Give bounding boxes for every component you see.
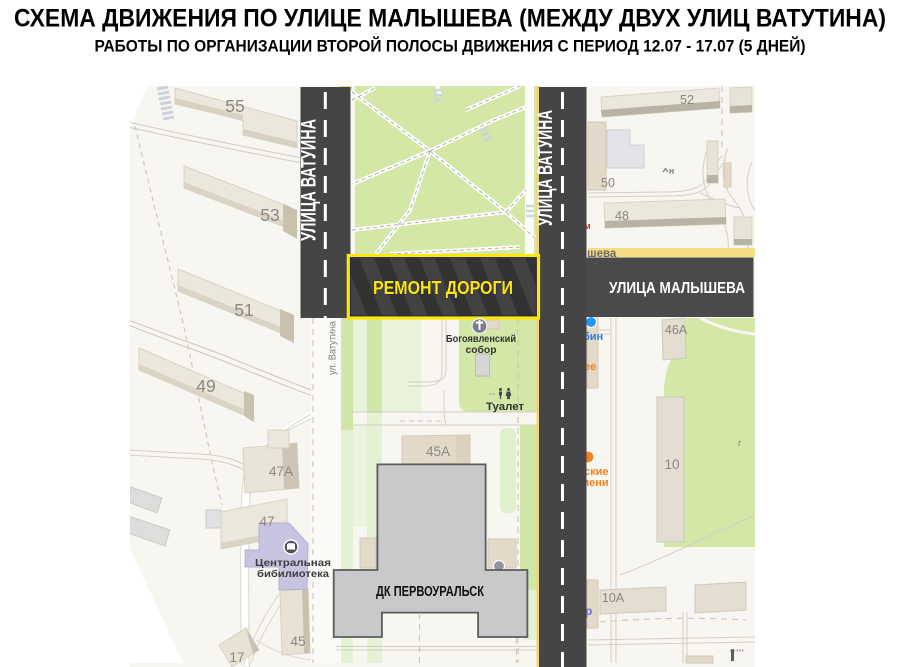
svg-text:РАБОТЫ ПО ОРГАНИЗАЦИИ ВТОРОЙ П: РАБОТЫ ПО ОРГАНИЗАЦИИ ВТОРОЙ ПОЛОСЫ ДВИЖ… — [95, 37, 806, 56]
svg-text:Туалет: Туалет — [486, 401, 525, 413]
svg-text:47А: 47А — [269, 464, 293, 479]
svg-text:51: 51 — [234, 300, 253, 320]
svg-text:ДК ПЕРВОУРАЛЬСК: ДК ПЕРВОУРАЛЬСК — [376, 584, 484, 600]
svg-text:10: 10 — [664, 457, 679, 472]
svg-text:52: 52 — [680, 93, 694, 107]
svg-text:47: 47 — [259, 514, 274, 529]
svg-text:УЛИЦА МАЛЫШЕВА: УЛИЦА МАЛЫШЕВА — [609, 280, 745, 297]
svg-text:49: 49 — [196, 376, 215, 396]
svg-text:45А: 45А — [426, 444, 450, 459]
svg-text:РЕМОНТ ДОРОГИ: РЕМОНТ ДОРОГИ — [373, 277, 513, 298]
svg-text:10А: 10А — [602, 591, 625, 605]
svg-text:48: 48 — [615, 209, 629, 223]
svg-text:бибилиотека: бибилиотека — [257, 568, 329, 580]
svg-text:17: 17 — [229, 650, 244, 665]
svg-text:УЛИЦА ВАТУИНА: УЛИЦА ВАТУИНА — [298, 119, 321, 241]
svg-text:53: 53 — [260, 205, 279, 225]
svg-text:ул. Ватутина: ул. Ватутина — [328, 321, 339, 375]
svg-text:46А: 46А — [665, 323, 688, 337]
svg-text:СХЕМА ДВИЖЕНИЯ ПО УЛИЦЕ МАЛЫШЕ: СХЕМА ДВИЖЕНИЯ ПО УЛИЦЕ МАЛЫШЕВА (МЕЖДУ … — [14, 5, 886, 33]
svg-text:***: *** — [736, 649, 744, 656]
svg-text:УЛИЦА ВАТУИНА: УЛИЦА ВАТУИНА — [534, 110, 557, 226]
svg-text:50: 50 — [601, 176, 615, 190]
svg-text:55: 55 — [225, 96, 244, 116]
svg-text:45: 45 — [290, 634, 305, 649]
